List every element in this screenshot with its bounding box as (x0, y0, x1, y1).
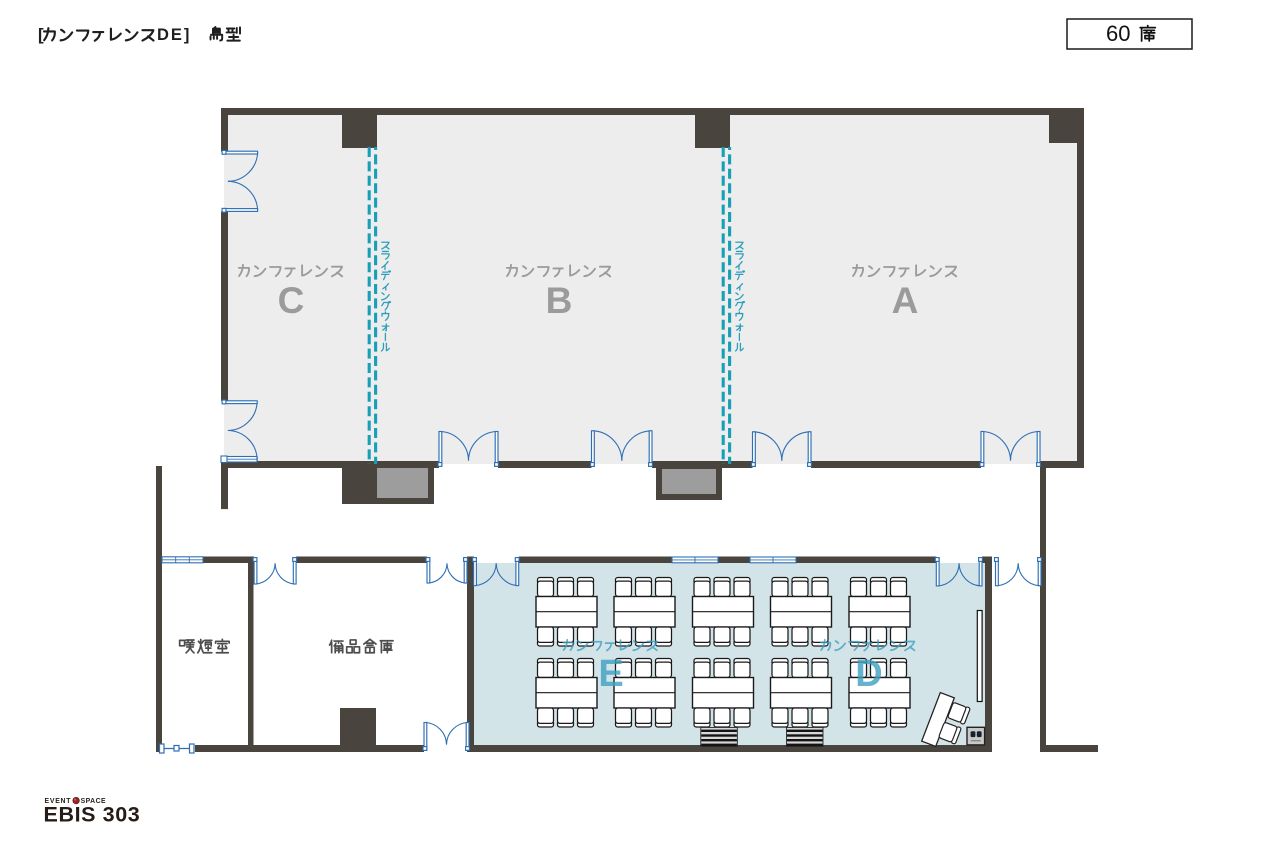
svg-text:EBIS 303: EBIS 303 (44, 803, 141, 827)
svg-text:A: A (892, 280, 919, 321)
svg-text:[: [ (38, 25, 44, 44)
svg-text:E: E (598, 653, 623, 695)
svg-text:DE]: DE] (157, 26, 191, 44)
svg-text:D: D (855, 653, 882, 695)
svg-text:60: 60 (1106, 21, 1130, 46)
svg-text:B: B (546, 280, 573, 321)
svg-text:C: C (278, 280, 305, 321)
